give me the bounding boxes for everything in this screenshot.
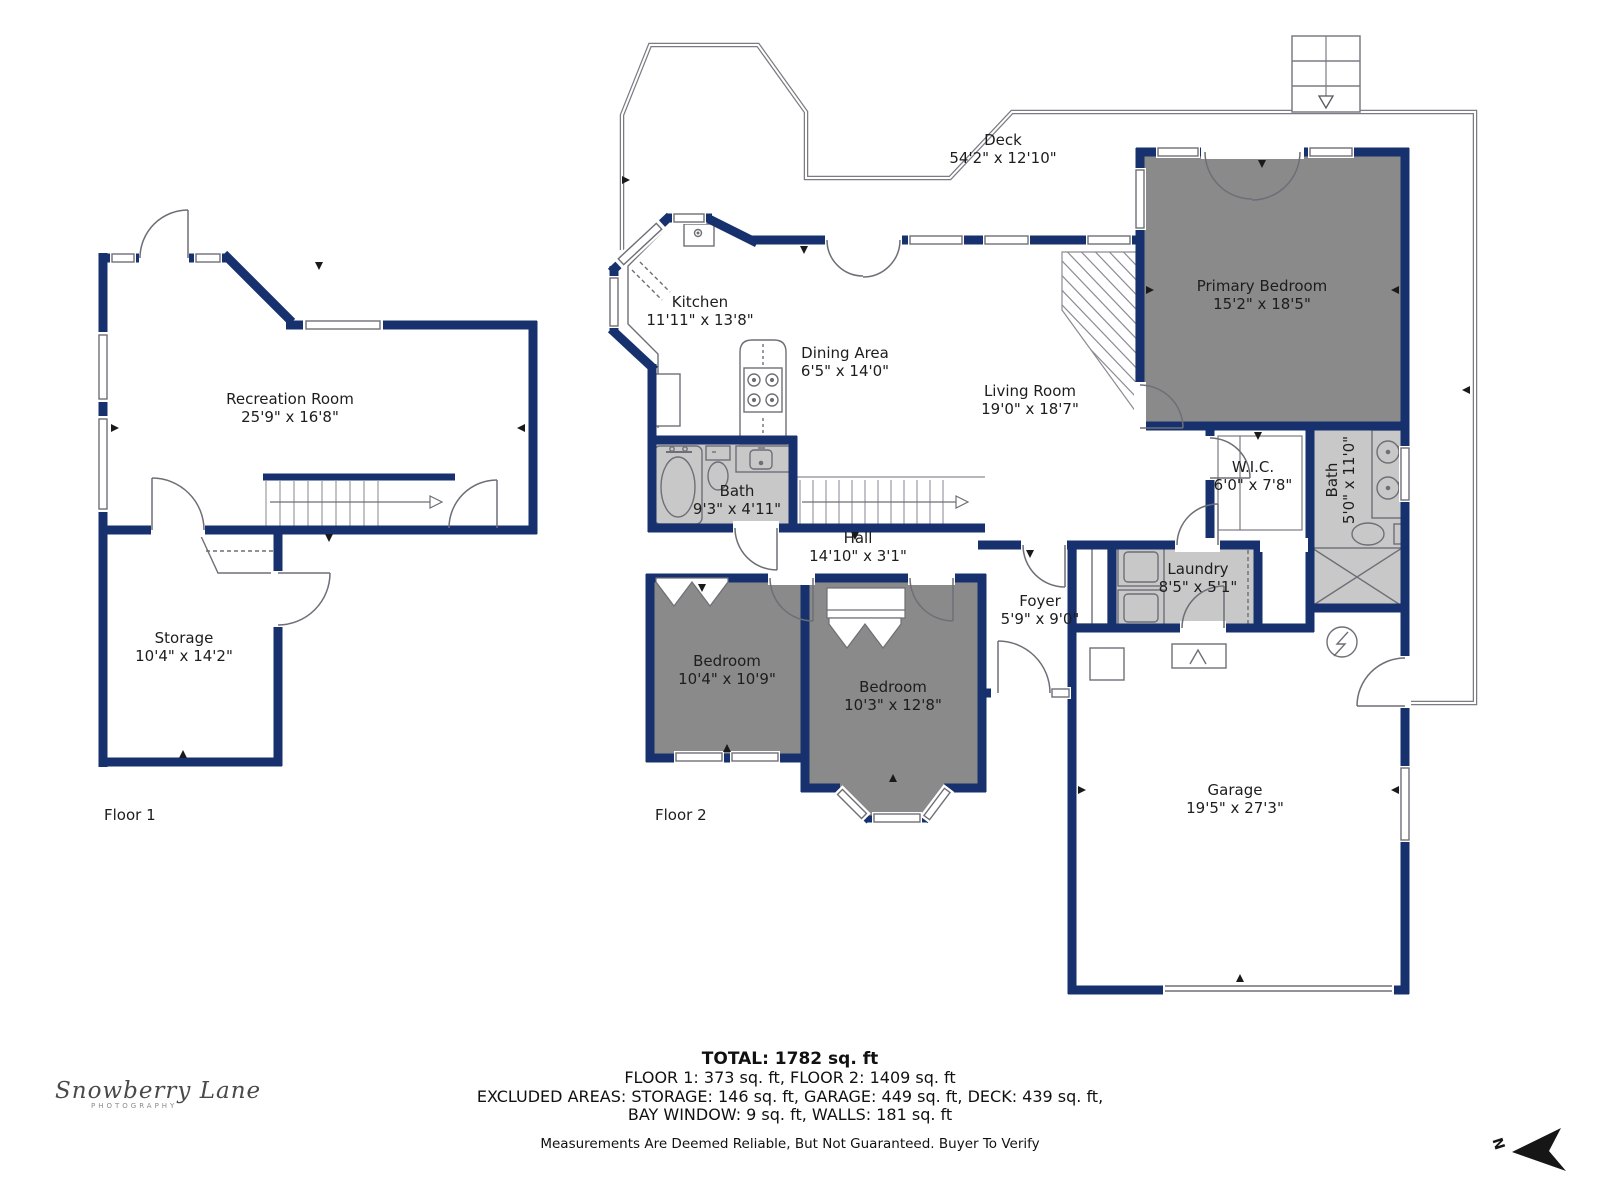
photographer-logo: Snowberry Lane PHOTOGRAPHY — [55, 1078, 261, 1110]
kitchen-sink-icon — [684, 224, 714, 246]
stove-icon — [744, 368, 782, 412]
garage-step — [1172, 644, 1226, 668]
window-icon — [99, 335, 107, 399]
room-label-dining: Dining Area6'5" x 14'0" — [801, 344, 889, 380]
room-label-bath-main: Bath9'3" x 4'11" — [693, 482, 781, 518]
window-icon — [910, 236, 962, 244]
floorplan-drawing — [0, 0, 1600, 1200]
water-heater-icon — [1327, 627, 1357, 657]
deck-stairs — [1292, 36, 1360, 112]
window-icon — [99, 419, 107, 509]
room-label-storage: Storage10'4" x 14'2" — [135, 629, 233, 665]
room-label-bath-primary: Bath5'0" x 11'0" — [1324, 436, 1358, 524]
floorplan-page: Recreation Room25'9" x 16'8" Storage10'4… — [0, 0, 1600, 1200]
foyer-closet — [1076, 548, 1108, 624]
door-rec-top — [140, 210, 188, 258]
room-label-hall: Hall14'10" x 3'1" — [809, 529, 907, 565]
door-storage — [278, 573, 330, 625]
window-icon — [874, 814, 920, 822]
window-icon — [196, 254, 220, 262]
window-icon — [732, 753, 778, 761]
logo-script: Snowberry Lane — [55, 1078, 261, 1104]
window-icon — [676, 753, 722, 761]
front-door — [998, 641, 1050, 693]
stairs-floor2 — [795, 477, 985, 525]
room-label-garage: Garage19'5" x 27'3" — [1186, 781, 1284, 817]
window-icon — [1052, 689, 1069, 697]
window-icon — [1401, 448, 1409, 500]
room-label-deck: Deck54'2" x 12'10" — [949, 131, 1056, 167]
window-icon — [1158, 148, 1198, 156]
room-label-wic: W.I.C.6'0" x 7'8" — [1214, 458, 1293, 494]
toilet2-icon — [1352, 523, 1404, 545]
door-rec-passage — [449, 480, 497, 528]
garage-post — [1090, 648, 1124, 680]
door-rec-bottom — [152, 478, 204, 530]
room-label-living: Living Room19'0" x 18'7" — [981, 382, 1079, 418]
room-label-bedroom1: Bedroom10'4" x 10'9" — [678, 652, 776, 688]
room-label-kitchen: Kitchen11'11" x 13'8" — [646, 293, 753, 329]
door-garage-side — [1357, 658, 1405, 706]
room-label-primary-bedroom: Primary Bedroom15'2" x 18'5" — [1197, 277, 1328, 313]
window-icon — [306, 321, 380, 329]
room-label-laundry: Laundry8'5" x 5'1" — [1159, 560, 1238, 596]
room-label-recreation: Recreation Room25'9" x 16'8" — [226, 390, 354, 426]
window-icon — [985, 236, 1028, 244]
floor2-label: Floor 2 — [655, 806, 707, 824]
understairs-slope — [200, 534, 274, 573]
total-area: TOTAL: 1782 sq. ft — [0, 1049, 1580, 1069]
window-icon — [112, 254, 134, 262]
window-icon — [1401, 768, 1409, 840]
window-icon — [610, 278, 618, 326]
window-icon — [1136, 170, 1144, 228]
kitchen-island — [740, 340, 786, 444]
stairs-floor1 — [266, 481, 442, 526]
room-label-foyer: Foyer5'9" x 9'0" — [1001, 592, 1080, 628]
window-icon — [674, 214, 704, 222]
window-icon — [1310, 148, 1352, 156]
floor1-label: Floor 1 — [104, 806, 156, 824]
disclaimer: Measurements Are Deemed Reliable, But No… — [0, 1136, 1580, 1152]
window-icon — [1088, 236, 1130, 244]
room-label-bedroom2: Bedroom10'3" x 12'8" — [844, 678, 942, 714]
bath-vanity-icon — [736, 446, 790, 472]
window-icon — [618, 223, 661, 264]
